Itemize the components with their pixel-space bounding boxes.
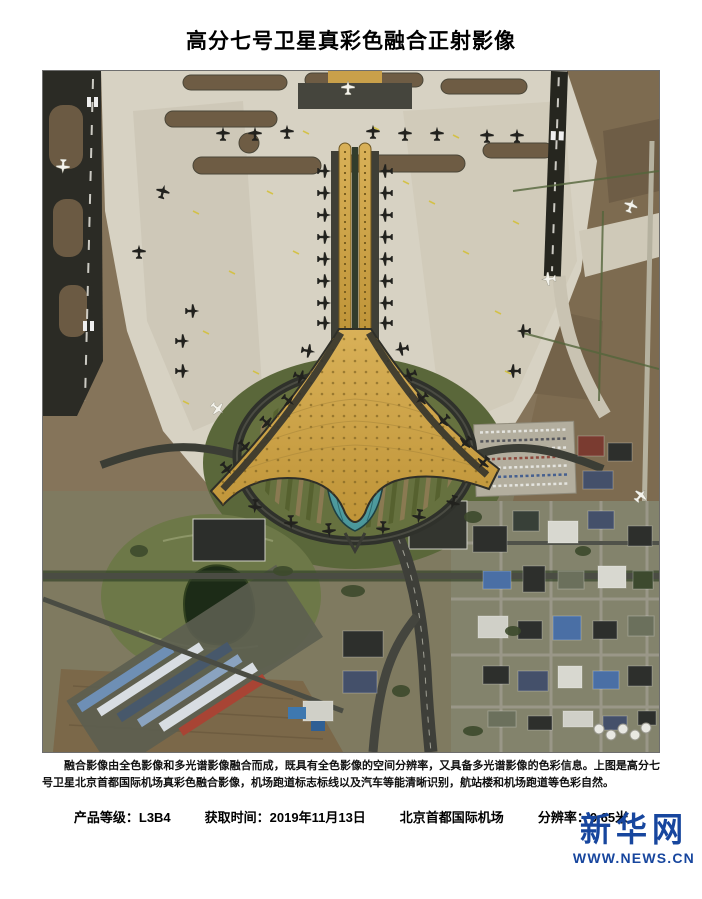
news-photo-page: { "page": { "title": "高分七号卫星真彩色融合正射影像", … [0, 0, 702, 899]
acquisition-time: 获取时间：2019年11月13日 [205, 807, 366, 826]
product-grade: 产品等级：L3B4 [74, 807, 171, 826]
image-caption: 融合影像由全色影像和多光谱影像融合而成，既具有全色影像的空间分辨率，又具备多光谱… [42, 758, 660, 792]
satellite-image [42, 70, 660, 753]
xinhuanet-url: WWW.NEWS.CN [573, 851, 695, 865]
page-title: 高分七号卫星真彩色融合正射影像 [0, 0, 702, 52]
xinhuanet-wordmark: 新华网 [573, 813, 695, 846]
runway-left [43, 71, 103, 416]
location: 北京首都国际机场 [400, 807, 504, 826]
xinhuanet-logo: 新华网 WWW.NEWS.CN [573, 814, 695, 865]
satellite-image-canvas [43, 71, 659, 752]
